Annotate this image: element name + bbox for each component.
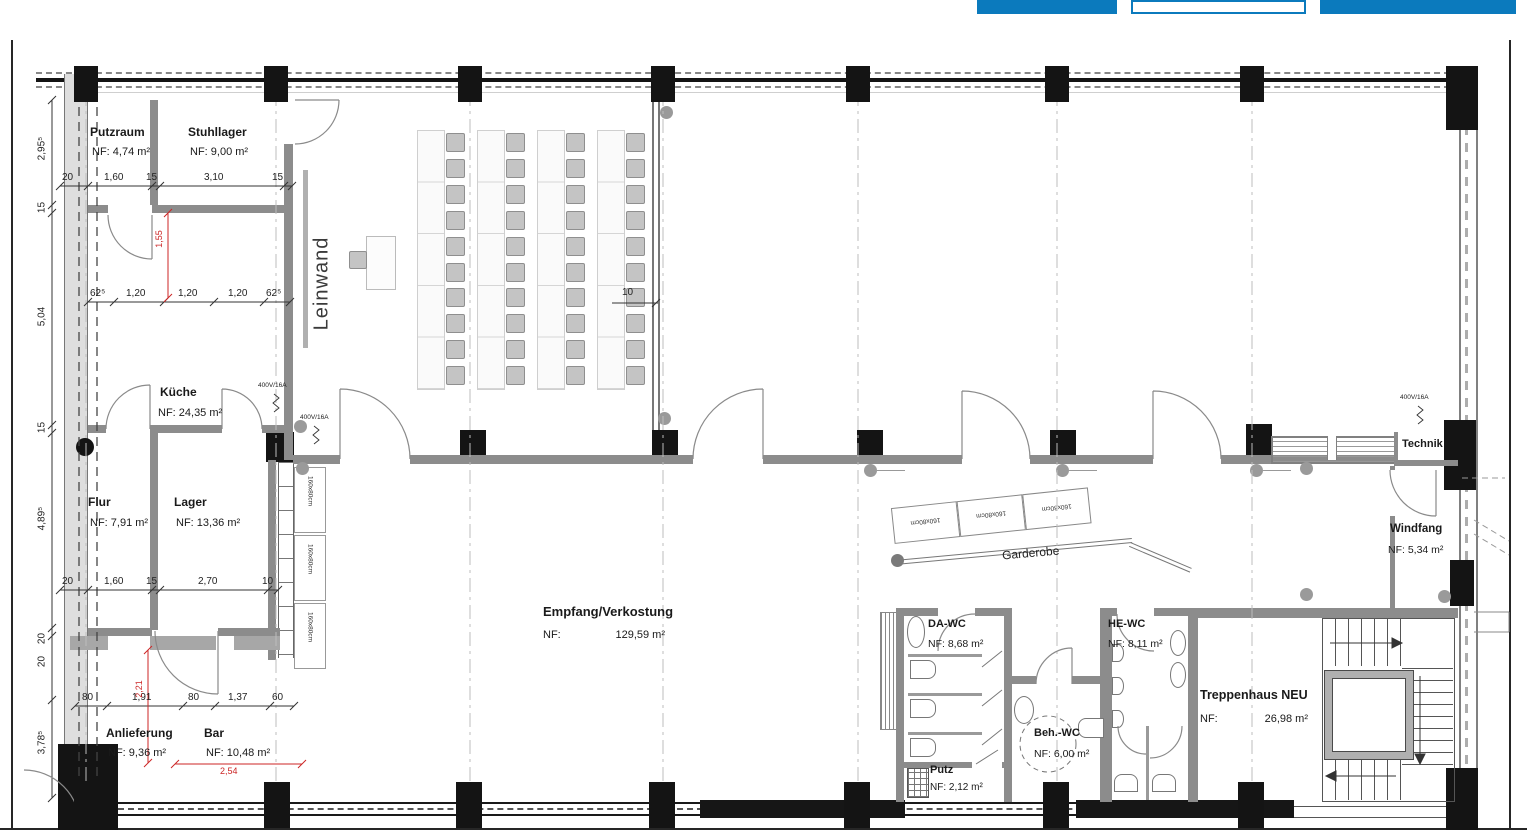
room-label-lager: Lager [174,495,207,509]
room-area-putzraum: NF: 4,74 m² [92,146,150,158]
dim-kueche-4: 62⁵ [266,288,281,299]
dim-left-7: 3,78⁵ [37,715,48,771]
bottom-column-5 [844,782,870,828]
dim-bar-0: 80 [82,692,93,703]
power-label-2: 400V/16A [300,414,329,421]
top-column-4 [651,66,675,102]
top-column-2 [264,66,288,102]
leinwand-label: Leinwand [311,209,334,359]
stall-doors [976,651,1002,764]
room-label-putz: Putz [930,764,953,776]
top-column-6 [1045,66,1069,102]
dim-top-1: 1,60 [104,172,123,183]
dim-kueche-3: 1,20 [228,288,247,299]
top-column-5 [846,66,870,102]
dim-red-1: 1,55 [154,219,164,259]
power-zigzags [273,394,1423,444]
room-label-empfang: Empfang/Verkostung [543,604,673,619]
dim-bar-3: 1,37 [228,692,247,703]
dim-left-3: 15 [37,400,48,456]
room-area-value-treppenhaus: 26,98 m² [1248,713,1308,725]
room-area-hewc: NF: 8,11 m² [1108,638,1163,650]
dim-top-3: 3,10 [204,172,223,183]
power-label-1: 400V/16A [258,382,287,389]
bottom-column-4 [649,782,675,828]
bottom-column-3 [456,782,482,828]
bottom-column-2 [264,782,290,828]
dim-left-6: 20 [37,634,48,690]
room-label-bar: Bar [204,726,224,740]
dim-left-0: 2,95⁵ [37,121,48,177]
exterior-canopy [1474,612,1509,632]
room-area-stuhllager: NF: 9,00 m² [190,146,248,158]
dim-bar-2: 80 [188,692,199,703]
room-area-label-treppenhaus: NF: [1200,713,1218,725]
bottom-column-1 [74,782,100,828]
stair-arrows [1326,638,1425,781]
room-label-anlieferung: Anlieferung [106,726,173,740]
room-label-flur: Flur [88,495,111,509]
door-swings [24,100,1436,826]
dim-kueche-2: 1,20 [178,288,197,299]
dim-kueche-1: 1,20 [126,288,145,299]
exterior-dashes [1462,478,1509,555]
room-area-anlieferung: NF: 9,36 m² [108,747,166,759]
power-label-3: 400V/16A [1400,394,1429,401]
red-dimension-lines [144,209,306,768]
room-area-behwc: NF: 6,00 m² [1034,748,1089,760]
dim-left-2: 5,04 [37,289,48,345]
wheelchair-turning-circle [1020,716,1076,772]
dim-kueche-0: 62⁵ [90,288,105,299]
dim-lager-1: 1,60 [104,576,123,587]
room-area-bar: NF: 10,48 m² [206,747,270,759]
bottom-column-7 [1238,782,1264,828]
grid-axes [86,92,1252,800]
dim-partition: 10 [622,287,633,298]
dim-lager-3: 2,70 [198,576,217,587]
dim-lager-0: 20 [62,576,73,587]
room-label-windfang: Windfang [1390,523,1442,535]
bottom-column-6 [1043,782,1069,828]
top-column-3 [458,66,482,102]
dim-bar-4: 60 [272,692,283,703]
dim-lager-2: 15 [146,576,157,587]
room-area-flur: NF: 7,91 m² [90,517,148,529]
room-area-label-empfang: NF: [543,629,561,641]
top-column-7 [1240,66,1264,102]
room-area-lager: NF: 13,36 m² [176,517,240,529]
room-area-dawc: NF: 8,68 m² [928,638,983,650]
room-label-dawc: DA-WC [928,618,966,630]
room-area-windfang: NF: 5,34 m² [1388,544,1443,556]
dim-red-3: 2,54 [220,766,238,776]
room-label-treppenhaus: Treppenhaus NEU [1200,688,1308,702]
room-label-kueche: Küche [160,385,197,399]
dim-red-2: 2,21 [134,669,144,709]
room-label-putzraum: Putzraum [90,125,145,139]
room-label-stuhllager: Stuhllager [188,125,247,139]
dim-lager-4: 10 [262,576,273,587]
room-area-value-empfang: 129,59 m² [595,629,665,641]
room-label-hewc: HE-WC [1108,618,1145,630]
dim-top-4: 15 [272,172,283,183]
room-label-technik: Technik [1402,438,1443,450]
floor-plan-sheet: 160x80cm 160x80cm 160x80cm 160x80cm160x8… [0,0,1527,832]
dim-left-4: 4,89⁵ [37,491,48,547]
dim-left-1: 15 [37,180,48,236]
room-label-behwc: Beh.-WC [1034,727,1080,739]
room-area-putz: NF: 2,12 m² [930,782,983,793]
dim-top-2: 15 [146,172,157,183]
top-column-1 [74,66,98,102]
room-area-kueche: NF: 24,35 m² [158,407,222,419]
dim-top-0: 20 [62,172,73,183]
